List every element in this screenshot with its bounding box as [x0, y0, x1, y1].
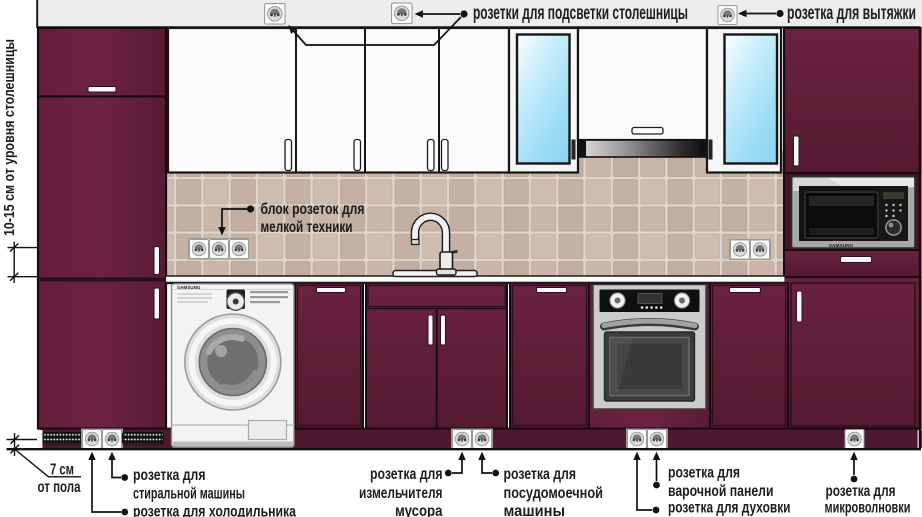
svg-text:розетка для: розетка для — [504, 466, 577, 483]
svg-text:розетка для: розетка для — [826, 483, 896, 500]
svg-text:микроволновки: микроволновки — [825, 500, 911, 517]
svg-text:розетка для: розетка для — [133, 467, 206, 484]
svg-text:SAMSUNG: SAMSUNG — [177, 285, 201, 290]
svg-text:от пола: от пола — [38, 479, 81, 496]
svg-text:7 см: 7 см — [50, 462, 74, 479]
svg-text:розетка для духовки: розетка для духовки — [668, 500, 791, 517]
svg-text:розетка для: розетка для — [668, 465, 740, 482]
svg-text:розетка для вытяжки: розетка для вытяжки — [787, 3, 916, 24]
svg-text:машины: машины — [504, 503, 566, 517]
svg-text:измельчителя: измельчителя — [359, 485, 443, 502]
svg-text:розетка для: розетка для — [370, 466, 443, 483]
svg-text:мелкой техники: мелкой техники — [261, 219, 353, 236]
svg-text:посудомоечной: посудомоечной — [504, 485, 604, 502]
svg-text:мусора: мусора — [395, 503, 443, 517]
svg-text:варочной панели: варочной панели — [668, 483, 774, 500]
svg-text:SAMSUNG: SAMSUNG — [829, 243, 854, 249]
svg-text:розетки для подсветки столешни: розетки для подсветки столешницы — [473, 3, 688, 24]
svg-text:блок розеток для: блок розеток для — [261, 201, 365, 218]
svg-text:розетка для холодильника: розетка для холодильника — [133, 504, 296, 517]
svg-text:10-15 см от уровня столешницы: 10-15 см от уровня столешницы — [2, 39, 18, 236]
svg-text:стиральной машины: стиральной машины — [133, 486, 245, 503]
